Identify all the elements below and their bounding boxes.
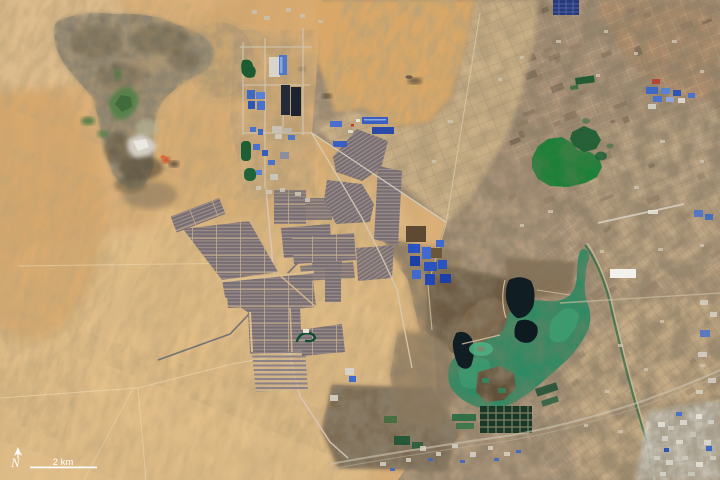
svg-text:2 km: 2 km: [53, 457, 74, 468]
svg-text:N: N: [10, 455, 21, 470]
